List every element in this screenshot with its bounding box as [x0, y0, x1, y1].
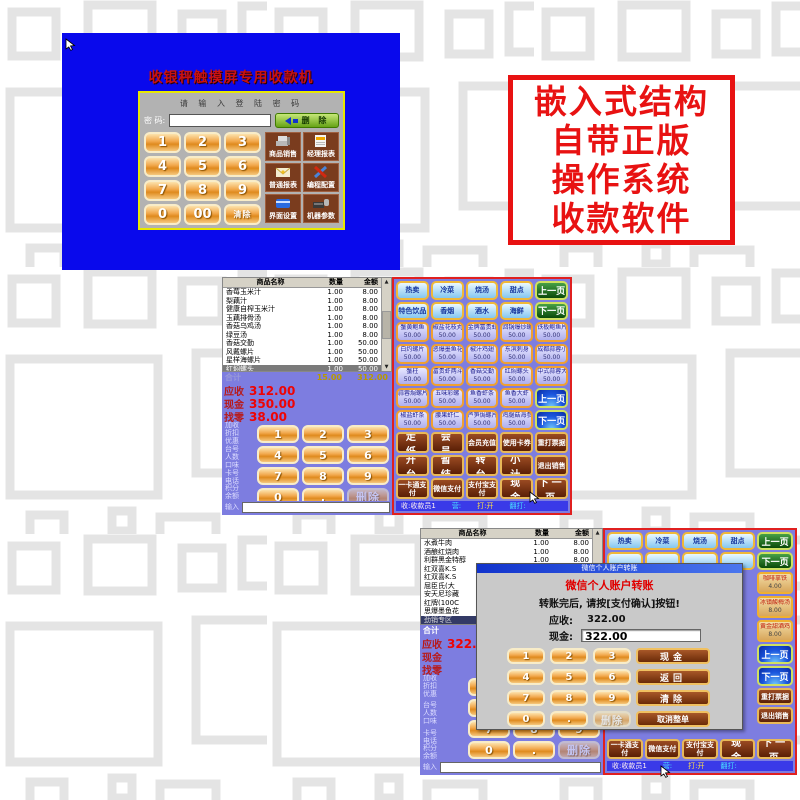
amount-due-row: 应收312.00 — [222, 383, 392, 396]
report-icon — [313, 133, 329, 149]
menu-button-ui-settings[interactable]: 界面设置 — [265, 194, 301, 223]
cash-amount-input[interactable]: 322.00 — [581, 629, 701, 642]
product-button[interactable]: 蟹黄鲍鱼50.00 — [396, 322, 429, 342]
input-row: 输入 — [420, 761, 603, 775]
back-button[interactable]: 返回 — [636, 669, 710, 685]
clear-key[interactable]: 清除 — [224, 204, 261, 225]
order-table: 商品名称 数量 金额 香莓玉米汁1.008.00 梨藕汁1.008.00 健康自… — [222, 277, 392, 372]
prev-page-button[interactable]: 上一页 — [535, 388, 568, 408]
table-row[interactable]: 水煮牛肉1.008.00 — [421, 539, 593, 548]
product-button[interactable]: 冰镇酸梅汤8.00 — [757, 596, 793, 618]
prev-page-button[interactable]: 上一页 — [535, 281, 568, 300]
order-table-header: 商品名称 数量 金额 — [421, 529, 593, 539]
field-labels: 加收折扣优惠 台号人数口味 卡号电话积分余额 — [420, 675, 448, 761]
category-button[interactable]: 酒水 — [466, 302, 499, 321]
keypad-key[interactable]: 3 — [593, 648, 631, 664]
table-row[interactable]: 香菇乌鸡汤1.008.00 — [223, 322, 382, 331]
keypad-key[interactable]: 5 — [302, 446, 344, 464]
left-arrow-icon — [285, 117, 291, 125]
cash-button[interactable]: 现金 — [636, 648, 710, 664]
keypad-key[interactable]: 5 — [184, 156, 221, 177]
feed-paper-button[interactable]: 走 纸 — [396, 432, 429, 453]
menu-button-machine-params[interactable]: 机器参数 — [303, 194, 339, 223]
backspace-button[interactable]: 删 除 — [275, 113, 339, 128]
next-page-button[interactable]: 下一页 — [535, 410, 568, 430]
table-scrollbar[interactable]: ▲▼ — [381, 278, 391, 371]
pos-keypad: 1 2 3 4 5 6 7 8 9 0 . 删除 — [250, 422, 392, 501]
keypad-key[interactable]: 9 — [347, 467, 389, 485]
category-button[interactable]: 冷菜 — [645, 532, 681, 550]
keypad-key[interactable]: 4 — [257, 446, 299, 464]
device-icon — [313, 195, 329, 211]
wechat-pay-button[interactable]: 微信支付 — [645, 739, 681, 759]
reprint-button[interactable]: 重打票据 — [535, 432, 568, 453]
product-button[interactable]: 回锅爆炒螺50.00 — [500, 322, 533, 342]
category-button[interactable]: 特色饮品 — [396, 302, 429, 321]
table-row[interactable]: 绿豆汤1.008.00 — [223, 331, 382, 340]
keypad-key[interactable]: 6 — [593, 669, 631, 685]
delete-key[interactable]: 删除 — [558, 741, 600, 759]
left-arrow-icon — [293, 119, 298, 123]
card-icon — [275, 195, 291, 211]
dialog-due-row: 应收: 322.00 — [549, 613, 742, 626]
keypad-key[interactable]: 9 — [224, 180, 261, 201]
category-button[interactable]: 甜点 — [500, 281, 533, 300]
card-pay-button[interactable]: 一卡通支付 — [396, 478, 429, 499]
table-row[interactable]: 香菇交勤1.0050.00 — [223, 339, 382, 348]
next-page-button[interactable]: 下一页 — [757, 739, 793, 759]
product-button[interactable]: 鸡腿菇海参50.00 — [500, 410, 533, 430]
category-button[interactable]: 海鲜 — [500, 302, 533, 321]
keypad-key[interactable]: 2 — [184, 132, 221, 153]
table-row[interactable]: 香莓玉米汁1.008.00 — [223, 288, 382, 297]
tools-icon — [313, 164, 329, 180]
dialog-instruction: 转账完后, 请按[支付确认]按钮! — [477, 595, 742, 610]
keypad-key[interactable]: 8 — [302, 467, 344, 485]
product-button[interactable]: 咖啡拿铁4.00 — [757, 572, 793, 594]
login-prompt: 请 输 入 登 陆 密 码 — [144, 98, 339, 109]
member-button[interactable]: 会 员 — [431, 432, 464, 453]
keypad-key[interactable]: 00 — [184, 204, 221, 225]
keypad-key[interactable]: 0 — [144, 204, 181, 225]
wechat-transfer-dialog: 微信个人账户转账 微信个人账户转账 转账完后, 请按[支付确认]按钮! 应收: … — [476, 563, 743, 730]
keypad-key[interactable]: . — [513, 741, 555, 759]
password-label: 密 码: — [144, 115, 165, 126]
menu-button-manager-report[interactable]: 经理报表 — [303, 132, 339, 161]
category-button[interactable]: 烧汤 — [682, 532, 718, 550]
envelope-icon — [275, 164, 291, 180]
dialog-side-buttons: 现金 返回 清除 取消整单 — [636, 648, 710, 727]
field-labels: 加收折扣优惠 台号人数口味 卡号电话积分余额 — [222, 422, 250, 501]
entry-input[interactable] — [440, 762, 601, 773]
product-button[interactable]: 中式蒜蓉大虾50.00 — [535, 366, 568, 386]
reprint-button[interactable]: 重打票据 — [757, 688, 793, 705]
table-row[interactable]: 酒酿红烧肉1.008.00 — [421, 548, 593, 557]
scroll-up-icon[interactable]: ▲ — [596, 529, 600, 537]
keypad-key[interactable]: 7 — [144, 180, 181, 201]
mouse-cursor — [660, 763, 671, 782]
next-page-button[interactable]: 下一页 — [535, 302, 568, 321]
keypad-key[interactable]: 4 — [144, 156, 181, 177]
input-row: 输入 — [222, 501, 392, 515]
keypad-key[interactable]: . — [302, 488, 344, 501]
login-panel: 请 输 入 登 陆 密 码 密 码: 删 除 1 2 3 4 5 6 7 8 9… — [138, 91, 345, 230]
pos-sales-screen: 商品名称 数量 金额 香莓玉米汁1.008.00 梨藕汁1.008.00 健康自… — [222, 277, 572, 515]
cash-row: 现金350.00 — [222, 396, 392, 409]
product-button[interactable]: 腰果虾仁50.00 — [431, 410, 464, 430]
mouse-cursor — [529, 489, 540, 508]
prev-page-button[interactable]: 上一页 — [757, 644, 793, 664]
category-button[interactable]: 烧汤 — [466, 281, 499, 300]
wechat-pay-button[interactable]: 微信支付 — [431, 478, 464, 499]
table-row-selected[interactable]: 红焖螺头1.0050.00 — [223, 365, 382, 373]
keypad-key[interactable]: 9 — [593, 690, 631, 706]
product-button[interactable]: 鱼香虾条50.00 — [466, 388, 499, 408]
callout-line: 自带正版 — [552, 121, 692, 160]
card-pay-button[interactable]: 一卡通支付 — [607, 739, 643, 759]
login-menu: 商品销售 经理报表 普通报表 编程配置 界面设置 — [265, 132, 339, 225]
product-button[interactable]: 五味彩螺50.00 — [431, 388, 464, 408]
product-button[interactable]: 白灼螺片50.00 — [396, 344, 429, 364]
use-coupon-button[interactable]: 使用卡券 — [500, 432, 533, 453]
product-button[interactable]: 东滨刺身50.00 — [500, 344, 533, 364]
temp-settle-button[interactable]: 暂 结 — [431, 455, 464, 476]
product-button[interactable]: 金牌富贵虾50.00 — [466, 322, 499, 342]
keypad-key[interactable]: 1 — [507, 648, 545, 664]
keypad-key[interactable]: 0 — [257, 488, 299, 501]
product-button[interactable]: 富贵虾两斗50.00 — [431, 366, 464, 386]
callout-line: 收款软件 — [552, 199, 692, 238]
category-button[interactable]: 冷菜 — [431, 281, 464, 300]
product-button[interactable]: 芦笋焗螺片50.00 — [466, 410, 499, 430]
product-button[interactable]: 香菇交勤50.00 — [466, 366, 499, 386]
product-button[interactable]: 铁板鲍鱼片50.00 — [535, 322, 568, 342]
menu-button-sales[interactable]: 商品销售 — [265, 132, 301, 161]
keypad-key[interactable]: 4 — [507, 669, 545, 685]
product-button[interactable]: 鱼香大虾50.00 — [500, 388, 533, 408]
product-button[interactable]: 红焖螺头50.00 — [500, 366, 533, 386]
member-recharge-button[interactable]: 会员充值 — [466, 432, 499, 453]
cancel-order-button[interactable]: 取消整单 — [636, 711, 710, 727]
prev-page-button[interactable]: 上一页 — [757, 532, 793, 550]
red-callout-box: 嵌入式结构 自带正版 操作系统 收款软件 — [508, 75, 735, 245]
status-bar: 收:收款员1 营: 打:开 翻打: — [607, 761, 793, 771]
menu-button-config[interactable]: 编程配置 — [303, 163, 339, 192]
dialog-heading: 微信个人账户转账 — [477, 577, 742, 593]
category-button[interactable]: 甜点 — [720, 532, 756, 550]
keypad-key[interactable]: 6 — [224, 156, 261, 177]
alipay-button[interactable]: 支付宝支付 — [466, 478, 499, 499]
next-page-button[interactable]: 下一页 — [757, 666, 793, 686]
subtotal-button[interactable]: 小 计 — [500, 455, 533, 476]
keypad-key[interactable]: . — [550, 711, 588, 727]
exit-sales-button[interactable]: 退出销售 — [535, 455, 568, 476]
keypad-key[interactable]: 7 — [507, 690, 545, 706]
exit-sales-button[interactable]: 退出销售 — [757, 707, 793, 724]
product-button[interactable]: 椒盐花枝丸50.00 — [431, 322, 464, 342]
keypad-key[interactable]: 3 — [224, 132, 261, 153]
entry-input[interactable] — [242, 502, 390, 513]
callout-line: 操作系统 — [552, 160, 692, 199]
keypad-key[interactable]: 1 — [144, 132, 181, 153]
category-button[interactable]: 热卖 — [607, 532, 643, 550]
right-button-column: 咖啡拿铁4.00 冰镇酸梅汤8.00 黄金甜酒鸡8.00 上一页 下一页 重打票… — [757, 572, 793, 737]
table-row[interactable]: 健康自榨玉米汁1.008.00 — [223, 305, 382, 314]
open-table-button[interactable]: 开 台 — [396, 455, 429, 476]
change-row: 找零38.00 — [222, 409, 392, 422]
product-button[interactable]: 椒汁鸡翅50.00 — [466, 344, 499, 364]
delete-key[interactable]: 删除 — [593, 711, 631, 727]
keypad-key[interactable]: 2 — [302, 425, 344, 443]
keypad-key[interactable]: 5 — [550, 669, 588, 685]
dialog-keypad: 1 2 3 4 5 6 7 8 9 0 . 删除 — [507, 648, 631, 727]
category-button[interactable]: 香烟 — [431, 302, 464, 321]
order-table-header: 商品名称 数量 金额 — [223, 278, 382, 288]
keypad-key[interactable]: 7 — [257, 467, 299, 485]
product-button[interactable]: 蒜蓉焗螺片50.00 — [396, 388, 429, 408]
keypad-key[interactable]: 8 — [184, 180, 221, 201]
scroll-down-icon[interactable]: ▼ — [385, 363, 389, 371]
keypad-key[interactable]: 8 — [550, 690, 588, 706]
product-button[interactable]: 成都蒜蓉小龙虾50.00 — [535, 344, 568, 364]
table-row[interactable]: 星样海螺片1.0050.00 — [223, 356, 382, 365]
keypad-key[interactable]: 1 — [257, 425, 299, 443]
login-screen: 收银秤触摸屏专用收款机 请 输 入 登 陆 密 码 密 码: 删 除 1 2 3… — [62, 33, 400, 270]
password-input[interactable] — [169, 114, 271, 127]
login-title: 收银秤触摸屏专用收款机 — [62, 67, 400, 87]
table-row[interactable]: 玉藕排骨汤1.008.00 — [223, 314, 382, 323]
delete-key[interactable]: 删除 — [347, 488, 389, 501]
transfer-table-button[interactable]: 转 台 — [466, 455, 499, 476]
login-keypad: 1 2 3 4 5 6 7 8 9 0 00 清除 — [144, 132, 261, 225]
status-bar: 收:收款员1 营: 打:开 翻打: — [396, 501, 568, 511]
register-icon — [275, 133, 291, 149]
product-button[interactable]: 椒盐虾条50.00 — [396, 410, 429, 430]
product-button[interactable]: 黄金甜酒鸡8.00 — [757, 620, 793, 642]
category-button[interactable]: 热卖 — [396, 281, 429, 300]
table-row[interactable]: 梨藕汁1.008.00 — [223, 297, 382, 306]
keypad-key[interactable]: 6 — [347, 446, 389, 464]
clear-button[interactable]: 清除 — [636, 690, 710, 706]
order-panel: 商品名称 数量 金额 香莓玉米汁1.008.00 梨藕汁1.008.00 健康自… — [222, 277, 392, 515]
keypad-key[interactable]: 3 — [347, 425, 389, 443]
dialog-cash-row: 现金: 322.00 — [549, 629, 742, 642]
next-page-button[interactable]: 下一页 — [757, 552, 793, 570]
alipay-button[interactable]: 支付宝支付 — [682, 739, 718, 759]
keypad-key[interactable]: 2 — [550, 648, 588, 664]
table-row[interactable]: 风戴螺片1.0050.00 — [223, 348, 382, 357]
keypad-key[interactable]: 0 — [507, 711, 545, 727]
cash-button[interactable]: 现 金 — [720, 739, 756, 759]
total-row: 合计 15.00 312.00 — [222, 372, 392, 383]
product-button[interactable]: 恶爆墨鱼花50.00 — [431, 344, 464, 364]
scroll-thumb[interactable] — [382, 311, 391, 339]
scroll-up-icon[interactable]: ▲ — [385, 278, 389, 286]
mouse-cursor — [65, 36, 76, 55]
callout-line: 嵌入式结构 — [534, 82, 709, 121]
menu-button-normal-report[interactable]: 普通报表 — [265, 163, 301, 192]
button-grid: 热卖 冷菜 烧汤 甜点 上一页 特色饮品 香烟 酒水 海鲜 下一页 蟹黄鲍鱼50… — [392, 277, 572, 515]
next-page-button[interactable]: 下一页 — [535, 478, 568, 499]
product-button[interactable]: 蟹柱50.00 — [396, 366, 429, 386]
dialog-titlebar[interactable]: 微信个人账户转账 — [477, 564, 742, 573]
keypad-key[interactable]: 0 — [468, 741, 510, 759]
